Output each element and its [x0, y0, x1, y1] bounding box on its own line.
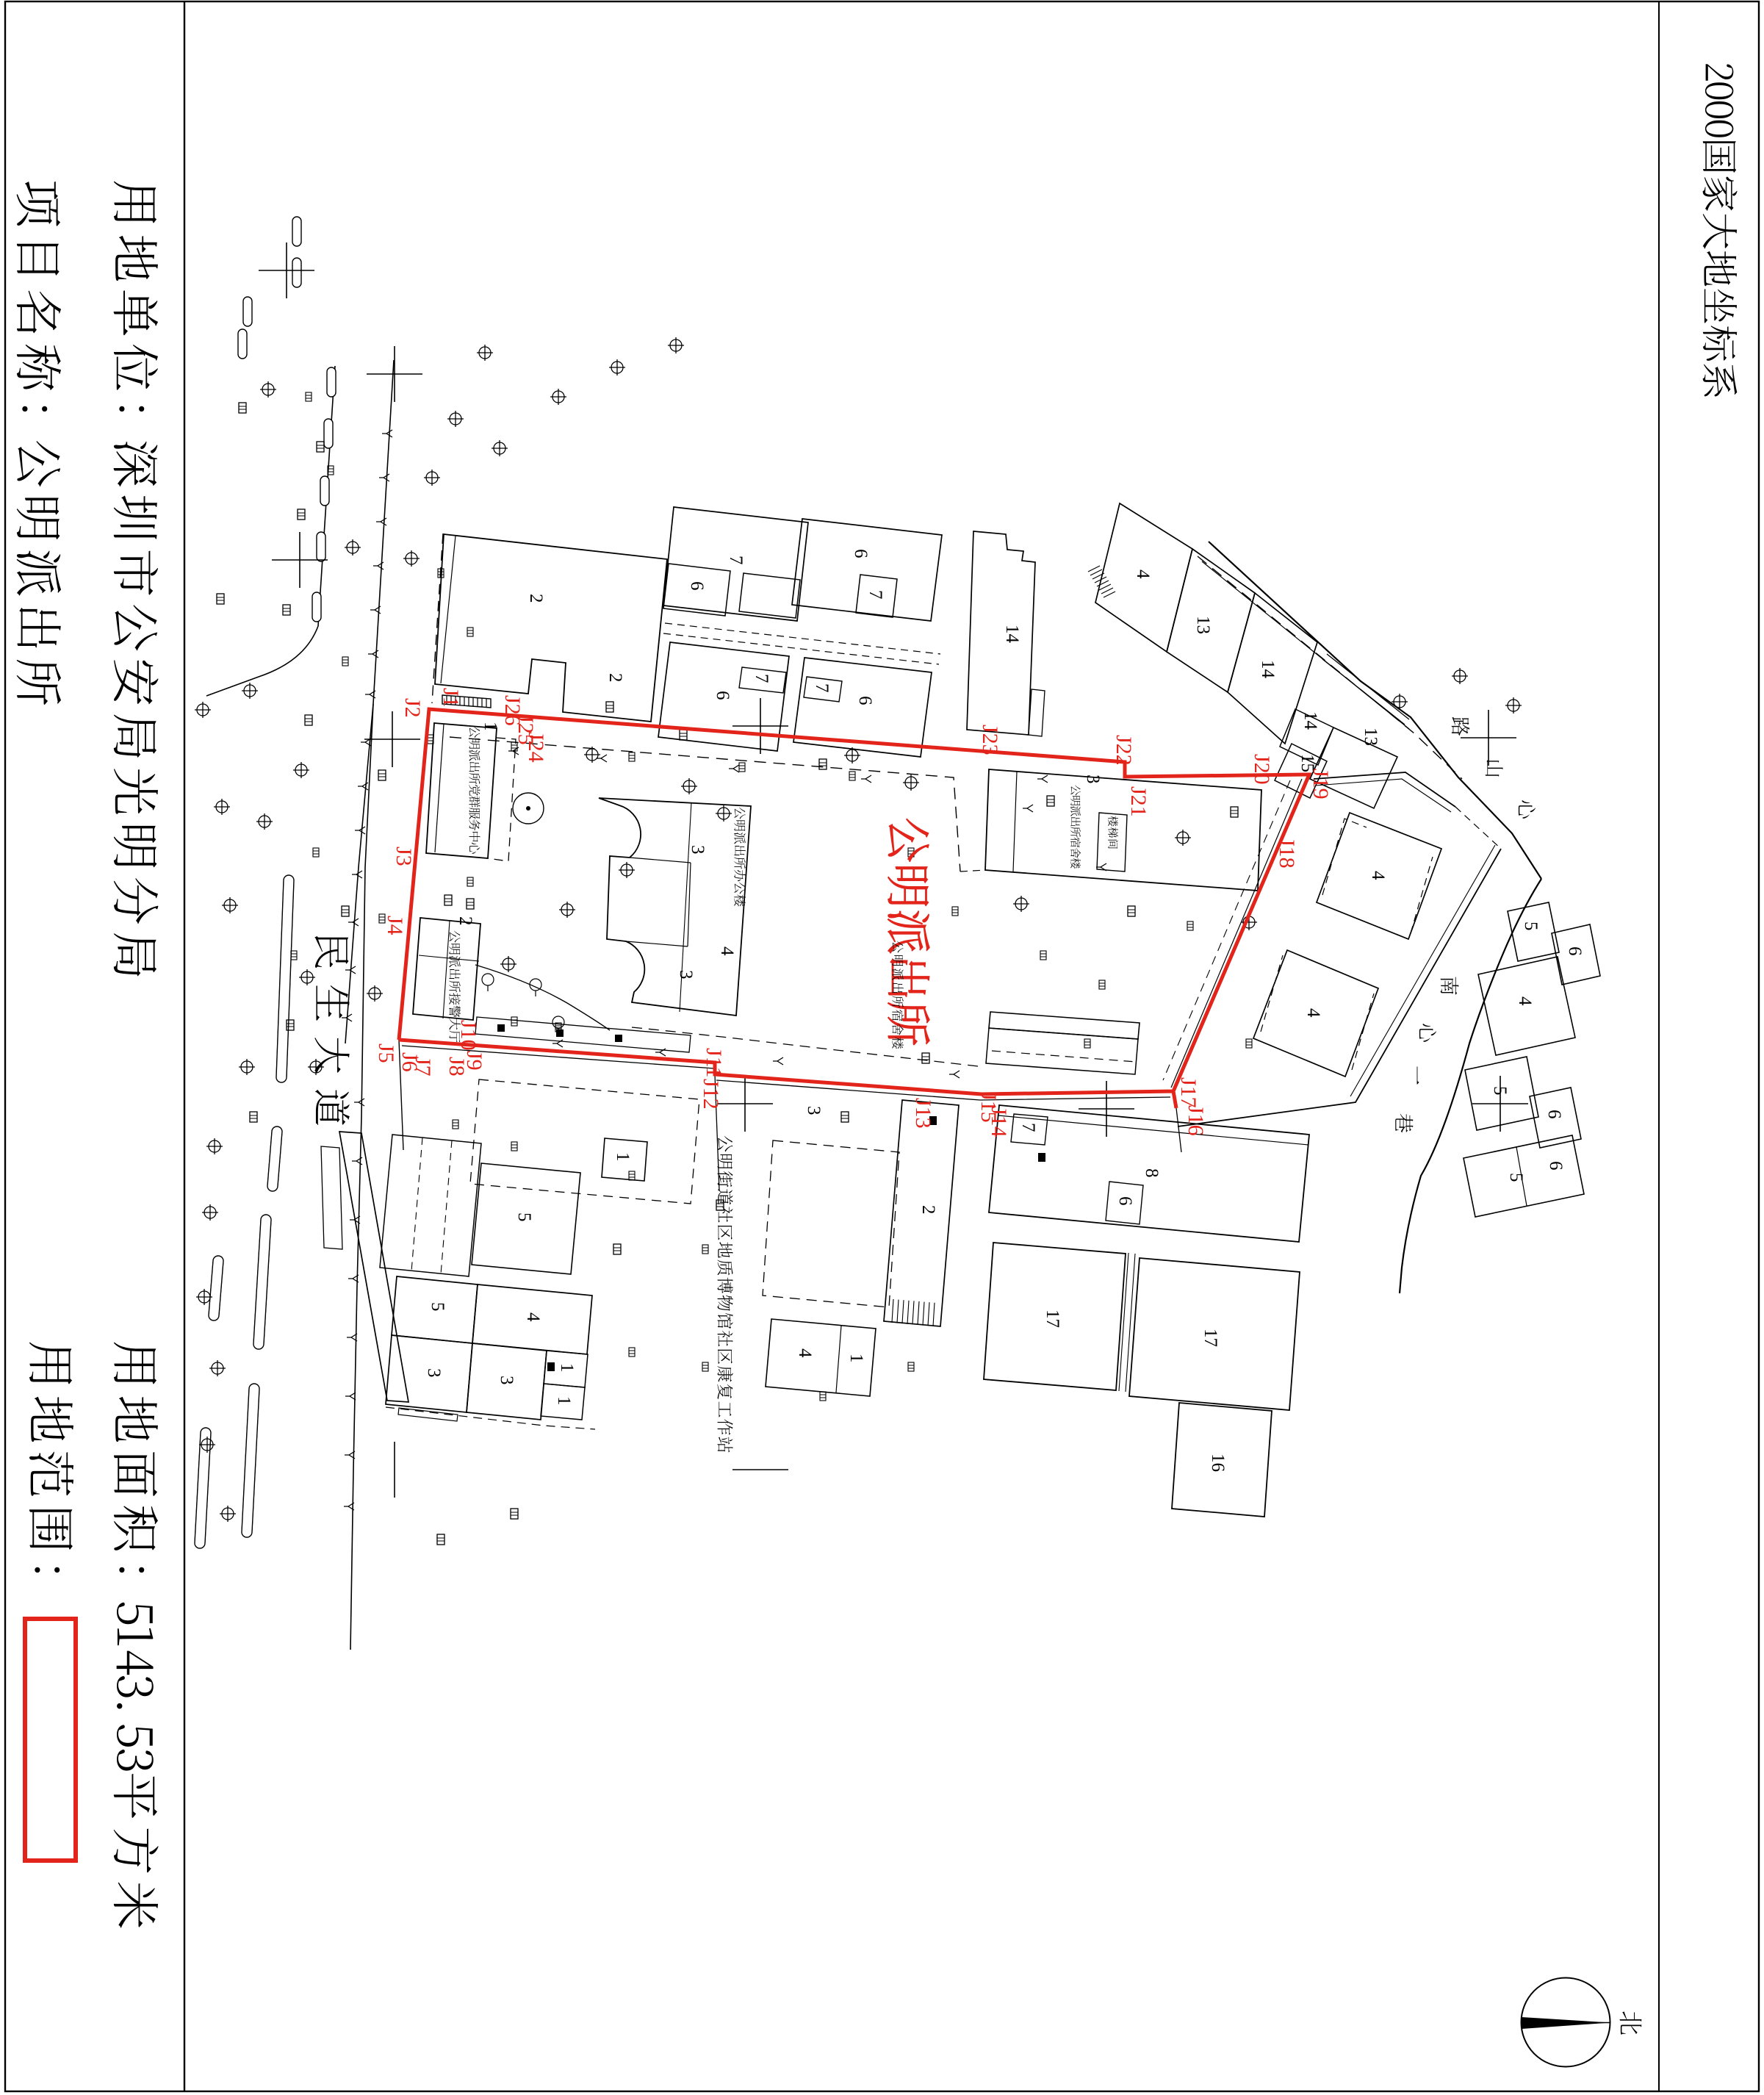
- svg-text:13: 13: [1361, 727, 1380, 746]
- svg-text:6: 6: [851, 549, 871, 558]
- svg-text:7: 7: [752, 674, 771, 683]
- svg-text:J6: J6: [397, 1052, 422, 1072]
- svg-text:2: 2: [918, 1205, 938, 1215]
- svg-text:4: 4: [1368, 871, 1388, 880]
- svg-text:17: 17: [1043, 1309, 1062, 1328]
- svg-text:1: 1: [613, 1152, 633, 1162]
- svg-text:1: 1: [846, 1354, 866, 1363]
- svg-text:7: 7: [726, 556, 746, 565]
- svg-text:1: 1: [480, 722, 500, 731]
- svg-text:J24: J24: [524, 732, 548, 763]
- svg-text:7: 7: [865, 590, 885, 600]
- svg-text:J10: J10: [456, 1020, 480, 1051]
- svg-text:J5: J5: [374, 1043, 398, 1063]
- svg-text:5: 5: [428, 1302, 447, 1312]
- svg-text:5: 5: [1490, 1086, 1510, 1096]
- svg-text:J16: J16: [1184, 1105, 1208, 1136]
- svg-text:7: 7: [812, 683, 832, 693]
- svg-text:J19: J19: [1308, 769, 1333, 799]
- svg-text:J13: J13: [911, 1098, 935, 1129]
- svg-text:5: 5: [514, 1212, 534, 1222]
- svg-text:8: 8: [1142, 1168, 1162, 1178]
- svg-text:J22: J22: [1112, 735, 1136, 766]
- svg-text:J3: J3: [392, 847, 416, 866]
- svg-text:J1: J1: [439, 688, 463, 708]
- svg-text:2: 2: [456, 916, 475, 926]
- svg-text:6: 6: [713, 691, 732, 700]
- svg-text:3: 3: [676, 970, 696, 980]
- svg-text:4: 4: [717, 946, 737, 956]
- svg-text:16: 16: [1208, 1453, 1228, 1472]
- svg-text:17: 17: [1200, 1329, 1220, 1347]
- svg-text:3: 3: [1083, 775, 1103, 784]
- svg-text:13: 13: [1193, 616, 1213, 634]
- svg-text:3: 3: [688, 845, 708, 855]
- svg-text:14: 14: [1300, 711, 1320, 730]
- svg-text:2: 2: [526, 594, 546, 603]
- svg-text:3: 3: [424, 1368, 444, 1378]
- svg-text:1: 1: [554, 1396, 574, 1406]
- svg-text:6: 6: [1544, 1110, 1564, 1119]
- svg-text:J21: J21: [1126, 786, 1151, 817]
- svg-text:J12: J12: [699, 1079, 723, 1110]
- svg-text:J18: J18: [1275, 838, 1299, 869]
- svg-text:J11: J11: [702, 1048, 726, 1078]
- svg-text:1: 1: [557, 1363, 577, 1373]
- svg-text:6: 6: [1546, 1161, 1566, 1171]
- svg-text:6: 6: [687, 581, 707, 591]
- svg-text:6: 6: [1115, 1196, 1135, 1206]
- svg-text:3: 3: [804, 1106, 824, 1115]
- svg-text:5: 5: [1521, 921, 1541, 931]
- svg-text:J20: J20: [1250, 754, 1274, 785]
- svg-text:J14: J14: [987, 1107, 1011, 1138]
- svg-text:J23: J23: [978, 725, 1002, 755]
- svg-text:J4: J4: [383, 916, 407, 935]
- svg-text:4: 4: [523, 1312, 543, 1322]
- svg-text:4: 4: [795, 1348, 815, 1358]
- svg-text:4: 4: [1303, 1008, 1323, 1018]
- svg-text:3: 3: [497, 1376, 516, 1385]
- svg-text:J2: J2: [400, 698, 425, 718]
- svg-text:J17: J17: [1176, 1077, 1200, 1108]
- svg-text:4: 4: [1515, 996, 1535, 1006]
- svg-text:6: 6: [1565, 946, 1585, 956]
- svg-text:14: 14: [1258, 660, 1278, 679]
- svg-text:4: 4: [1133, 569, 1153, 579]
- svg-text:7: 7: [1018, 1123, 1038, 1132]
- svg-text:14: 14: [1002, 625, 1022, 644]
- svg-text:5: 5: [1506, 1173, 1526, 1182]
- svg-text:J8: J8: [444, 1057, 469, 1077]
- svg-text:2: 2: [605, 673, 625, 683]
- svg-text:6: 6: [855, 696, 875, 705]
